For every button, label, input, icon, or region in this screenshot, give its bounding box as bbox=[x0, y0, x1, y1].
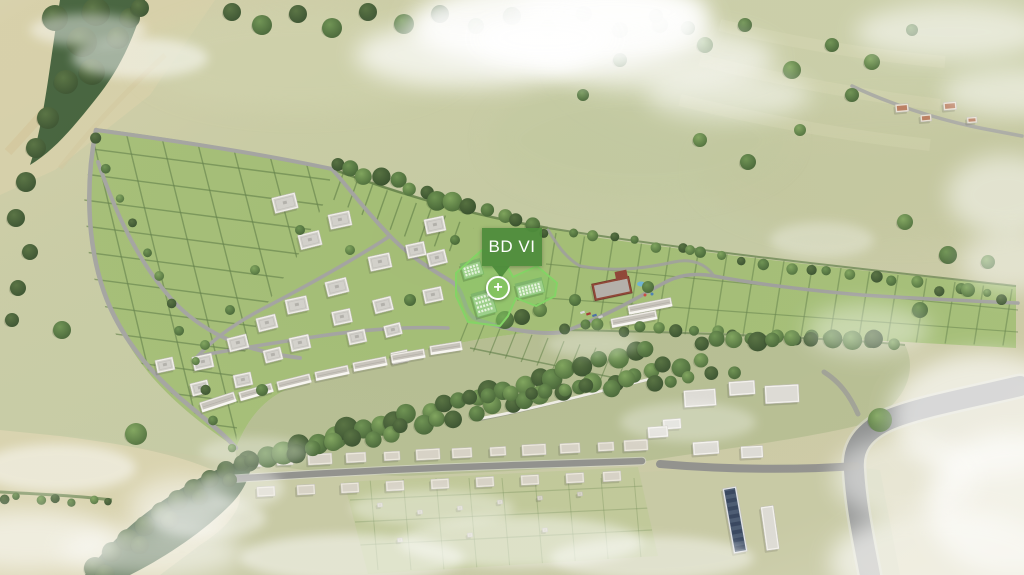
aerial-masterplan-render bbox=[0, 0, 1024, 575]
masterplan-viewport: BD VI + bbox=[0, 0, 1024, 575]
plot-expand-button[interactable]: + bbox=[486, 276, 510, 300]
plot-tooltip-label: BD VI bbox=[489, 237, 536, 257]
vignette bbox=[0, 0, 1024, 575]
plus-icon: + bbox=[493, 280, 502, 296]
plot-tooltip-bd-vi[interactable]: BD VI bbox=[482, 228, 542, 266]
